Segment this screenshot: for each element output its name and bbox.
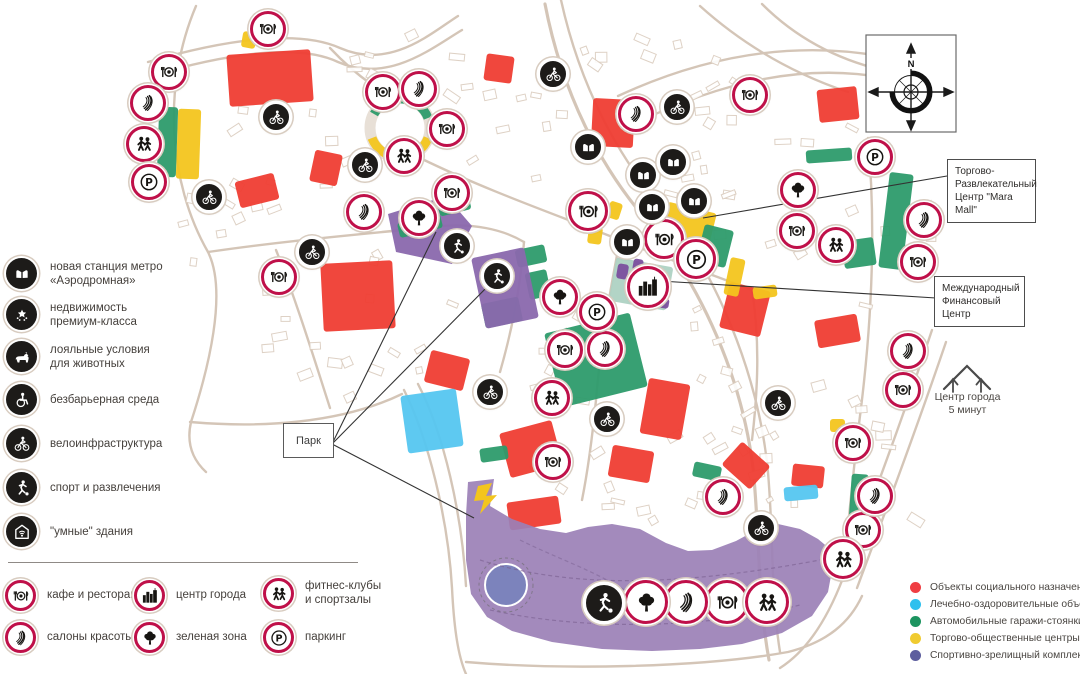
zone-color-dot [910, 633, 921, 644]
rest-icon [158, 61, 180, 83]
rest-icon [652, 227, 677, 252]
fitness-icon [754, 589, 781, 616]
callout-mara-mall: Торгово- Развлекательный Центр "Mara Mal… [947, 159, 1036, 223]
sport-icon [448, 237, 467, 256]
amenity-legend-item-beauty: салоны красоты [5, 622, 134, 653]
amenity-legend-label: зеленая зона [176, 631, 247, 645]
feature-legend-item-metro: новая станция метро «Аэродромная» [6, 258, 163, 289]
marker-rest [250, 11, 286, 47]
legend-divider [8, 562, 358, 563]
marker-parking [857, 139, 893, 175]
bike-icon [481, 383, 500, 402]
zone-block-red [791, 463, 825, 488]
marker-rest [900, 244, 936, 280]
fitness-icon [541, 387, 563, 409]
fitness-icon [263, 578, 294, 609]
bike-icon [544, 65, 563, 84]
marker-parking [579, 294, 615, 330]
bike-icon [769, 394, 788, 413]
stars-icon [6, 299, 37, 330]
zone-legend-label: Объекты социального назначения [930, 582, 1080, 593]
rest-icon [436, 118, 458, 140]
rest-icon [892, 379, 914, 401]
zones-legend: Объекты социального назначения Лечебно-о… [910, 579, 1080, 664]
marker-rest [885, 372, 921, 408]
bike-icon [303, 243, 322, 262]
marker-rest [434, 175, 470, 211]
marker-rest [835, 425, 871, 461]
marker-parking [131, 164, 167, 200]
rest-icon [786, 220, 808, 242]
marker-bike [592, 404, 622, 434]
beauty-icon [712, 486, 734, 508]
feature-legend-label: "умные" здания [50, 525, 133, 539]
zone-block-cyan [783, 485, 818, 502]
amenity-legend-label: салоны красоты [47, 631, 134, 645]
zone-color-dot [910, 616, 921, 627]
zone-block-red [320, 260, 395, 332]
zone-color-dot [910, 599, 921, 610]
rest-icon [739, 84, 761, 106]
zone-block-red [814, 313, 861, 348]
parking-icon [864, 146, 886, 168]
feature-legend-label: лояльные условия для животных [50, 343, 150, 371]
city-icon [635, 274, 661, 300]
marker-bike [746, 513, 776, 543]
zone-block-green [806, 147, 853, 163]
marker-rest [535, 444, 571, 480]
zone-legend-item: Спортивно-зрелищный комплекс [910, 647, 1080, 664]
zone-legend-item: Объекты социального назначения [910, 579, 1080, 596]
district-map-infographic: N новая станция метро «Аэродромная» недв… [0, 0, 1080, 674]
marker-metro [637, 192, 667, 222]
zone-block-yellow [606, 200, 624, 220]
callout-financial-center: Международный Финансовый Центр [934, 276, 1025, 327]
marker-city [627, 266, 669, 308]
feature-legend-item-bike: велоинфраструктура [6, 428, 162, 459]
marker-rest [568, 191, 608, 231]
zone-color-dot [910, 582, 921, 593]
marker-parking [676, 239, 716, 279]
bike-icon [200, 188, 219, 207]
parking-icon [138, 171, 160, 193]
zone-legend-label: Автомобильные гаражи-стоянки [930, 616, 1080, 627]
amenity-legend-label: паркинг [305, 631, 346, 645]
marker-sport [482, 261, 512, 291]
marker-metro [628, 160, 658, 190]
fitness-icon [825, 234, 847, 256]
amenity-legend-item-parking: паркинг [263, 622, 346, 653]
rest-icon [554, 339, 576, 361]
marker-metro [679, 186, 709, 216]
beauty-icon [594, 338, 616, 360]
tree-icon [633, 589, 660, 616]
metro-icon [664, 153, 683, 172]
marker-bike [475, 377, 505, 407]
marker-fitness [534, 380, 570, 416]
marker-tree [401, 200, 437, 236]
marker-bike [538, 59, 568, 89]
fitness-icon [831, 547, 856, 572]
beauty-icon [864, 485, 886, 507]
zone-block-green [479, 445, 509, 463]
amenity-legend-label: фитнес-клубы и спортзалы [305, 580, 381, 607]
rest-icon [268, 266, 290, 288]
parking-icon [586, 301, 608, 323]
zone-block-cyan [400, 388, 464, 453]
bike-icon [598, 410, 617, 429]
marker-bike [261, 102, 291, 132]
marker-beauty [587, 331, 623, 367]
amenity-legend-label: центр города [176, 589, 246, 603]
marker-metro [612, 227, 642, 257]
marker-beauty [618, 96, 654, 132]
marker-rest [547, 332, 583, 368]
marker-fitness [745, 580, 789, 624]
metro-icon [6, 258, 37, 289]
beauty-icon [408, 78, 430, 100]
marker-beauty [906, 202, 942, 238]
zone-block-yellow [176, 109, 201, 180]
callout-park: Парк [283, 423, 334, 458]
beauty-icon [137, 92, 159, 114]
marker-metro [658, 147, 688, 177]
bike-icon [752, 519, 771, 538]
tree-icon [408, 207, 430, 229]
zone-block-red [234, 173, 279, 209]
zone-color-dot [910, 650, 921, 661]
zone-legend-item: Торгово-общественные центры [910, 630, 1080, 647]
marker-sport [442, 231, 472, 261]
marker-fitness [823, 539, 863, 579]
metro-icon [618, 233, 637, 252]
rest-icon [441, 182, 463, 204]
marker-bike [194, 182, 224, 212]
marker-rest [429, 111, 465, 147]
tree-icon [134, 622, 165, 653]
fitness-icon [133, 133, 155, 155]
marker-beauty [705, 479, 741, 515]
marker-tree [624, 580, 668, 624]
bike-icon [6, 428, 37, 459]
beauty-icon [897, 340, 919, 362]
city-center-direction-icon [944, 366, 990, 392]
marker-beauty [664, 580, 708, 624]
feature-legend-item-stars: недвижимость премиум-класса [6, 299, 137, 330]
city-icon [134, 580, 165, 611]
feature-legend-item-sport: спорт и развлечения [6, 472, 161, 503]
rest-icon [714, 589, 741, 616]
marker-metro [573, 132, 603, 162]
rest-icon [257, 18, 279, 40]
zone-block-red [483, 53, 514, 84]
marker-tree [542, 279, 578, 315]
rest-icon [5, 580, 36, 611]
beauty-icon [625, 103, 647, 125]
pet-icon [6, 341, 37, 372]
amenity-legend-item-fitness: фитнес-клубы и спортзалы [263, 578, 381, 609]
bike-icon [356, 156, 375, 175]
feature-legend-label: велоинфраструктура [50, 437, 162, 451]
beauty-icon [913, 209, 935, 231]
zone-legend-item: Автомобильные гаражи-стоянки [910, 613, 1080, 630]
marker-fitness [386, 138, 422, 174]
beauty-icon [673, 589, 700, 616]
amenity-legend-label: кафе и рестораны [47, 589, 145, 603]
marker-sport [584, 583, 624, 623]
marker-bike [350, 150, 380, 180]
marker-bike [763, 388, 793, 418]
smart-icon [6, 516, 37, 547]
feature-legend-item-smart: "умные" здания [6, 516, 133, 547]
zone-block-red [226, 49, 313, 107]
tree-icon [549, 286, 571, 308]
marker-rest [779, 213, 815, 249]
sport-icon [488, 267, 507, 286]
bike-icon [668, 98, 687, 117]
rest-icon [852, 519, 874, 541]
amenity-legend-item-tree: зеленая зона [134, 622, 247, 653]
amenity-legend-item-rest: кафе и рестораны [5, 580, 145, 611]
metro-icon [685, 192, 704, 211]
marker-bike [662, 92, 692, 122]
zone-block-red [309, 149, 343, 186]
rest-icon [907, 251, 929, 273]
feature-legend-label: спорт и развлечения [50, 481, 161, 495]
feature-legend-item-wheelchair: безбарьерная среда [6, 384, 159, 415]
feature-legend-label: недвижимость премиум-класса [50, 301, 137, 329]
wheelchair-icon [6, 384, 37, 415]
marker-beauty [890, 333, 926, 369]
bike-icon [267, 108, 286, 127]
marker-tree [780, 172, 816, 208]
feature-legend-label: безбарьерная среда [50, 393, 159, 407]
marker-beauty [130, 85, 166, 121]
compass-north-label: N [908, 59, 915, 70]
beauty-icon [5, 622, 36, 653]
feature-legend-item-pet: лояльные условия для животных [6, 341, 150, 372]
sport-icon [591, 590, 617, 616]
sport-icon [6, 472, 37, 503]
marker-bike [297, 237, 327, 267]
tree-icon [787, 179, 809, 201]
feature-legend-label: новая станция метро «Аэродромная» [50, 260, 163, 288]
rest-icon [542, 451, 564, 473]
zone-block-red [816, 86, 859, 123]
compass-rose: N [866, 35, 956, 132]
zone-block-red [424, 350, 471, 392]
rest-icon [842, 432, 864, 454]
zone-legend-item: Лечебно-оздоровительные объекты [910, 596, 1080, 613]
parking-icon [263, 622, 294, 653]
marker-rest [365, 74, 401, 110]
marker-beauty [401, 71, 437, 107]
marker-rest [261, 259, 297, 295]
amenity-legend-item-city: центр города [134, 580, 246, 611]
marker-fitness [126, 126, 162, 162]
beauty-icon [353, 201, 375, 223]
zone-legend-label: Спортивно-зрелищный комплекс [930, 650, 1080, 661]
metro-icon [643, 198, 662, 217]
metro-icon [634, 166, 653, 185]
rest-icon [372, 81, 394, 103]
marker-rest [732, 77, 768, 113]
zone-legend-label: Лечебно-оздоровительные объекты [930, 599, 1080, 610]
marker-rest [705, 580, 749, 624]
zone-block-red [639, 378, 690, 440]
marker-rest [151, 54, 187, 90]
metro-icon [579, 138, 598, 157]
marker-fitness [818, 227, 854, 263]
city-center-5min-label: Центр города 5 минут [925, 391, 1010, 417]
zone-block-red [608, 445, 655, 484]
parking-icon [684, 247, 709, 272]
rest-icon [576, 199, 601, 224]
marker-beauty [857, 478, 893, 514]
callout-line [660, 281, 936, 298]
zone-legend-label: Торгово-общественные центры [930, 633, 1080, 644]
callout-line [332, 444, 474, 518]
fitness-icon [393, 145, 415, 167]
marker-beauty [346, 194, 382, 230]
